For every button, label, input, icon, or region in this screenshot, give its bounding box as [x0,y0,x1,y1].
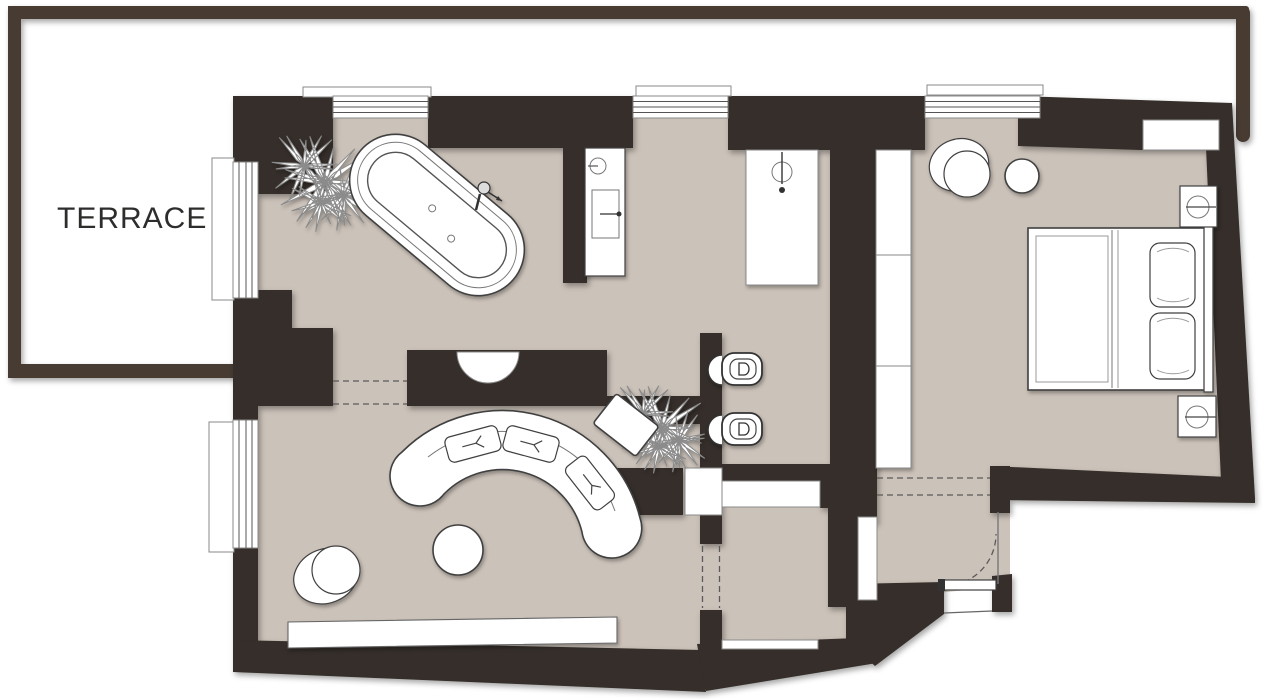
window-west-2 [233,420,258,548]
wc-pocket-door [722,481,820,507]
terrace-wall-right-stub [1236,6,1250,142]
wc-door-opening [685,468,722,515]
window-top-1 [333,96,428,118]
hall-entry-doorway [858,517,877,600]
entry-door-hinge [938,579,945,591]
window-top-3 [925,96,1040,118]
round-side-table-bedroom [1005,159,1039,193]
window-sill-2 [636,86,731,96]
nightstand-2 [1178,396,1216,437]
wall-hung-toilet [708,353,762,385]
headboard [1204,226,1213,392]
bedroom-wall-niche [1143,120,1219,150]
terrace-wall-top [8,6,1249,19]
wall-wc-south [722,464,832,481]
vanity-sink [585,148,625,276]
wall-top-1 [428,96,633,148]
terrace-wall-bottom [8,364,255,378]
hall-threshold-door [722,640,818,649]
bidet [708,413,762,445]
window-top-2 [633,96,728,118]
floor-plan-drawing: TERRACE [0,0,1263,699]
wall-jamb-bedroom-sw [990,466,1010,513]
window-sill-3 [927,85,1043,95]
wall-bath-partition [563,118,587,283]
round-pouf [433,525,483,575]
wardrobe [876,150,911,468]
entry-threshold-line [944,611,992,613]
window-west-1 [233,162,258,298]
sideboard [288,617,617,648]
wall-top-2 [728,96,925,150]
pillow-2 [1150,313,1195,379]
wall-wc-bedroom [830,148,877,473]
nightstand-1 [1180,186,1217,227]
entry-door-leaf [944,580,996,590]
floor-plan-page: TERRACE [0,0,1263,699]
window-sill-west-1 [212,158,234,300]
wall-bath-living-left [233,328,333,406]
pillow-1 [1150,243,1195,307]
terrace-label: TERRACE [57,202,207,235]
terrace-wall-left [8,6,21,378]
window-sill-west-2 [209,422,234,552]
double-bed [1028,226,1213,392]
